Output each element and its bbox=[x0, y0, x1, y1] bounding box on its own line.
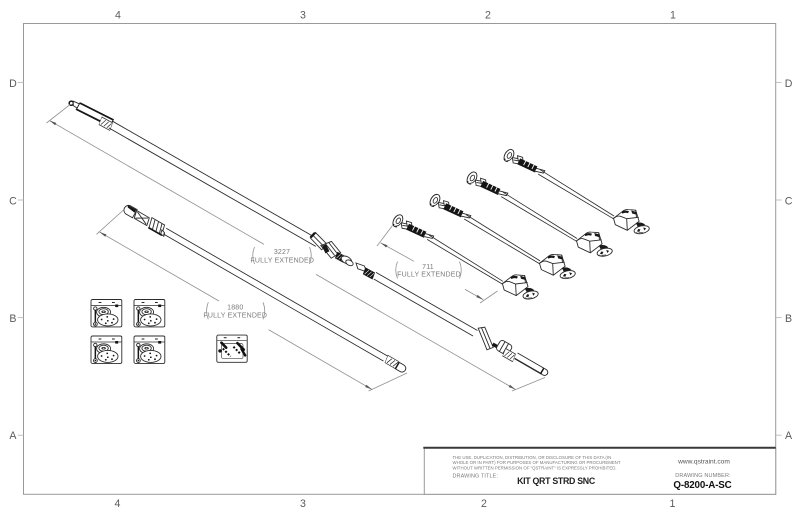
svg-text:C: C bbox=[9, 196, 17, 208]
svg-text:2: 2 bbox=[481, 498, 487, 510]
svg-text:711: 711 bbox=[422, 264, 434, 271]
svg-text:FULLY EXTENDED: FULLY EXTENDED bbox=[397, 272, 461, 279]
svg-text:B: B bbox=[785, 313, 792, 325]
svg-text:4: 4 bbox=[115, 498, 121, 510]
svg-text:FULLY EXTENDED: FULLY EXTENDED bbox=[203, 313, 267, 320]
svg-text:C: C bbox=[785, 196, 793, 208]
svg-text:B: B bbox=[9, 313, 16, 325]
svg-text:FULLY EXTENDED: FULLY EXTENDED bbox=[250, 257, 314, 264]
svg-text:3227: 3227 bbox=[274, 249, 290, 256]
svg-text:A: A bbox=[785, 430, 793, 442]
svg-text:3: 3 bbox=[300, 498, 306, 510]
svg-text:1: 1 bbox=[670, 9, 676, 21]
svg-text:1: 1 bbox=[670, 498, 676, 510]
svg-text:A: A bbox=[9, 430, 17, 442]
svg-text:D: D bbox=[785, 78, 793, 90]
svg-text:1880: 1880 bbox=[227, 305, 243, 312]
svg-text:2: 2 bbox=[485, 9, 491, 21]
svg-text:3: 3 bbox=[300, 9, 306, 21]
svg-text:D: D bbox=[9, 78, 17, 90]
svg-text:DRAWING TITLE:: DRAWING TITLE: bbox=[453, 474, 499, 480]
svg-text:Q-8200-A-SC: Q-8200-A-SC bbox=[673, 480, 731, 491]
svg-text:www.qstraint.com: www.qstraint.com bbox=[677, 459, 730, 466]
svg-text:DRAWING NUMBER:: DRAWING NUMBER: bbox=[675, 473, 731, 479]
svg-text:WITHOUT WRITTEN PERMISSION OF: WITHOUT WRITTEN PERMISSION OF "QSTRAINT"… bbox=[453, 465, 617, 470]
svg-text:KIT QRT STRD SNC: KIT QRT STRD SNC bbox=[517, 476, 596, 486]
svg-text:4: 4 bbox=[115, 9, 121, 21]
